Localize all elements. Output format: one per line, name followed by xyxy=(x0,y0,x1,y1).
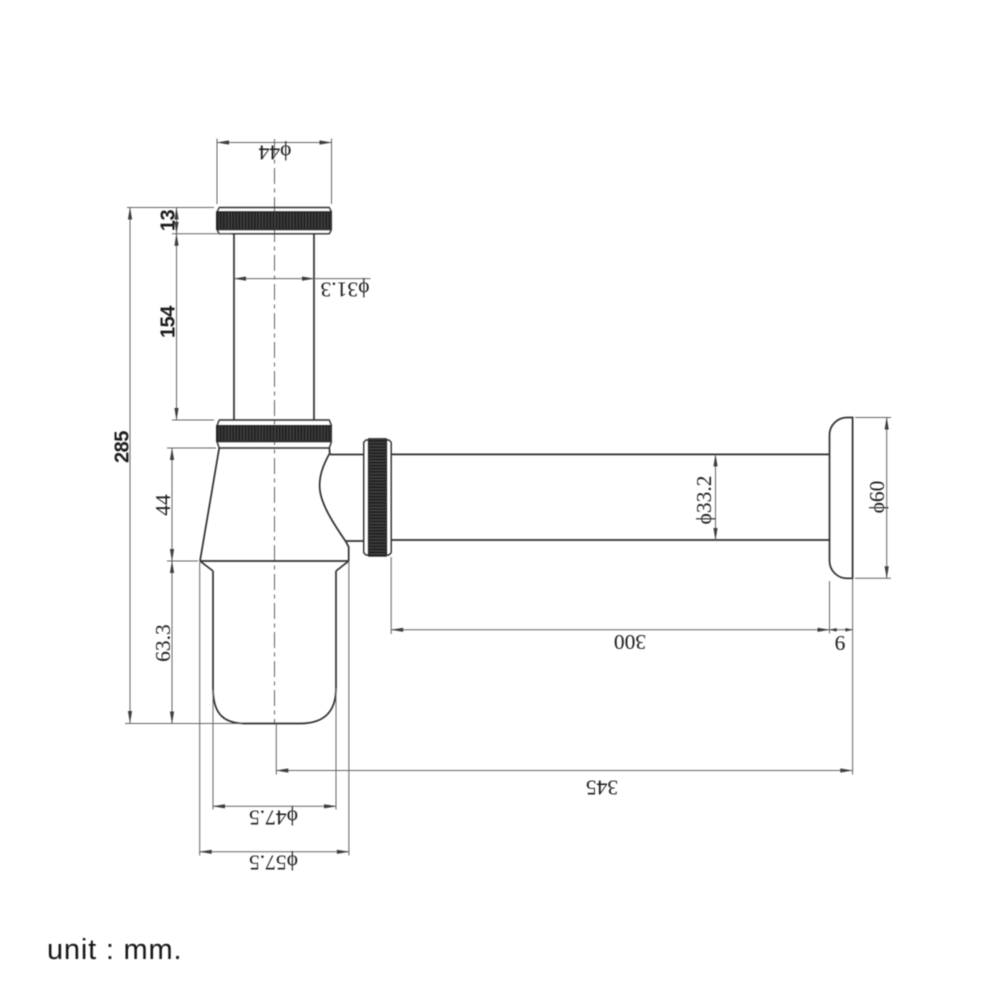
svg-text:ϕ60: ϕ60 xyxy=(865,481,889,514)
svg-text:ϕ47.5: ϕ47.5 xyxy=(249,806,298,830)
svg-text:ϕ44: ϕ44 xyxy=(258,141,291,165)
svg-text:ϕ33.2: ϕ33.2 xyxy=(692,476,716,525)
svg-text:285: 285 xyxy=(112,431,134,463)
svg-text:154: 154 xyxy=(158,305,180,338)
svg-text:unit : mm.: unit : mm. xyxy=(47,934,182,966)
svg-text:345: 345 xyxy=(586,776,618,800)
svg-text:ϕ31.3: ϕ31.3 xyxy=(321,278,370,302)
svg-text:6: 6 xyxy=(835,631,846,655)
svg-text:ϕ57.5: ϕ57.5 xyxy=(249,851,298,875)
svg-text:300: 300 xyxy=(614,630,646,654)
svg-text:13: 13 xyxy=(158,210,180,232)
svg-text:44: 44 xyxy=(151,494,175,516)
svg-text:63.3: 63.3 xyxy=(151,624,175,662)
